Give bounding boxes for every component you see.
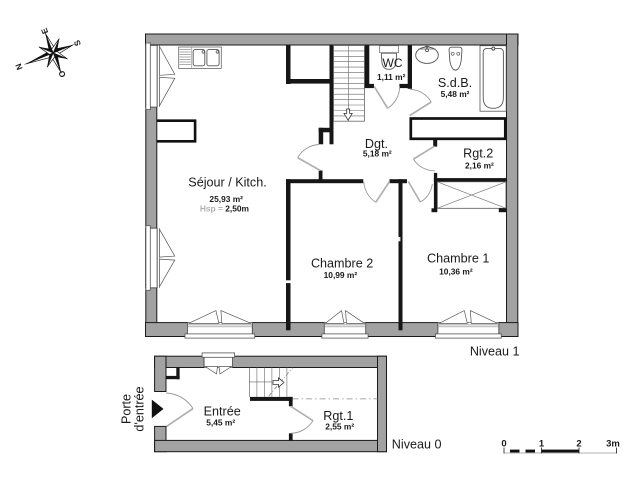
svg-text:Niveau 0: Niveau 0 bbox=[392, 438, 442, 452]
svg-text:10,99 m²: 10,99 m² bbox=[324, 270, 358, 280]
svg-text:25,93 m²: 25,93 m² bbox=[209, 194, 243, 204]
svg-text:5,48 m²: 5,48 m² bbox=[441, 89, 470, 99]
svg-text:Rgt.2: Rgt.2 bbox=[463, 146, 493, 160]
svg-text:Niveau 1: Niveau 1 bbox=[470, 345, 520, 359]
svg-text:1: 1 bbox=[539, 439, 545, 450]
svg-text:5,45 m²: 5,45 m² bbox=[206, 418, 235, 428]
svg-text:Chambre 1: Chambre 1 bbox=[427, 252, 489, 266]
svg-text:2,16 m²: 2,16 m² bbox=[465, 161, 494, 171]
svg-text:1,11 m²: 1,11 m² bbox=[377, 72, 406, 82]
svg-text:3m: 3m bbox=[606, 439, 620, 450]
svg-text:Chambre 2: Chambre 2 bbox=[311, 257, 373, 271]
svg-text:10,36 m²: 10,36 m² bbox=[439, 267, 473, 277]
svg-text:Séjour / Kitch.: Séjour / Kitch. bbox=[188, 176, 266, 190]
svg-text:2: 2 bbox=[576, 439, 581, 450]
svg-text:WC: WC bbox=[383, 56, 403, 70]
svg-text:2,55 m²: 2,55 m² bbox=[325, 422, 354, 432]
svg-text:5,18 m²: 5,18 m² bbox=[363, 149, 392, 159]
svg-text:Hsp = 2,50m: Hsp = 2,50m bbox=[200, 204, 249, 214]
svg-text:0: 0 bbox=[501, 439, 506, 450]
